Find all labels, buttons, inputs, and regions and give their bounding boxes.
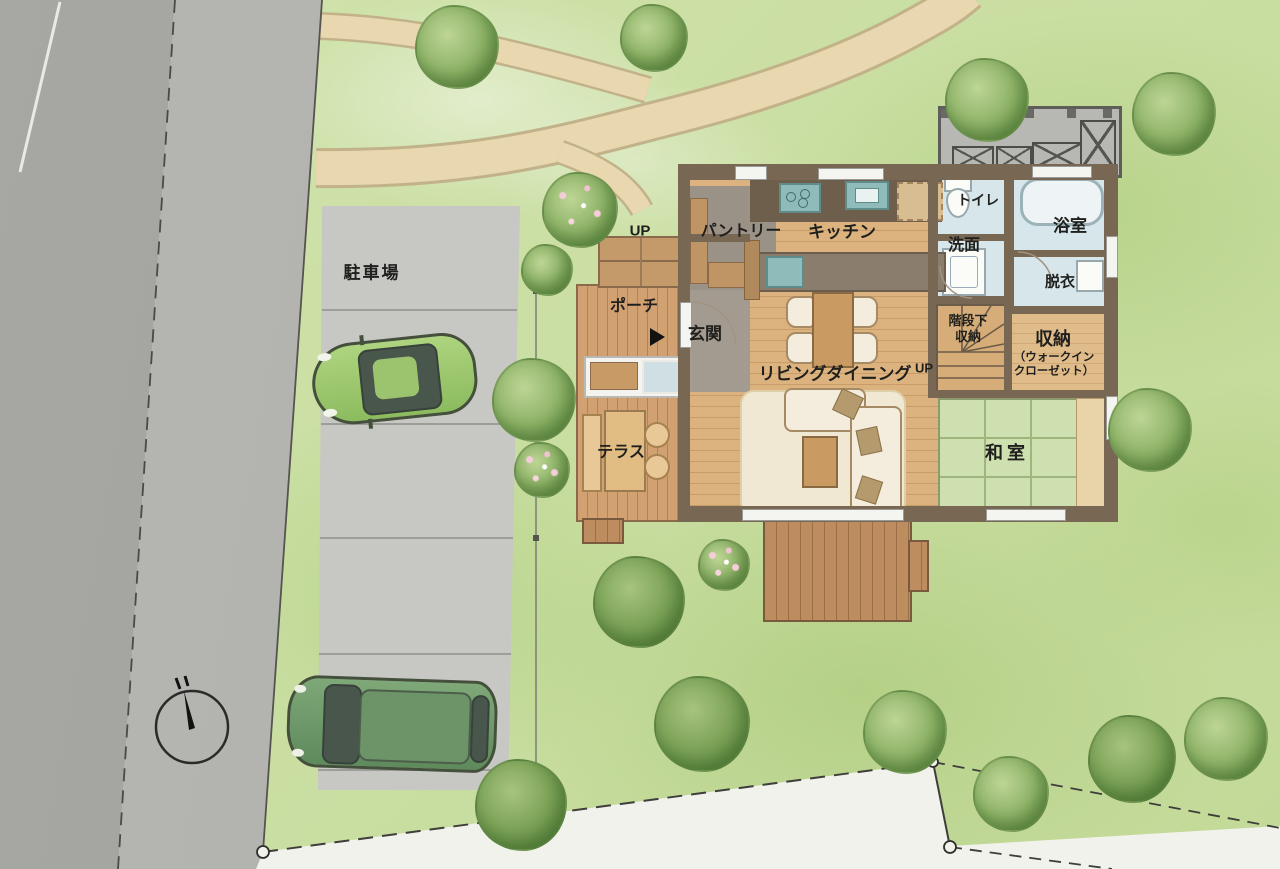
washing-machine	[1076, 260, 1104, 292]
flowering-tree	[698, 539, 750, 591]
tree	[973, 756, 1049, 832]
tree	[415, 5, 499, 89]
living-dining-label: リビングダイニング	[759, 360, 912, 385]
vanity-sink	[950, 256, 978, 288]
equipment-pad	[1080, 120, 1116, 170]
wall-wash-bath	[1004, 170, 1014, 310]
terrace-step	[582, 518, 624, 544]
sink-basin	[855, 188, 879, 203]
tree	[654, 676, 750, 772]
island-sink	[766, 256, 804, 288]
pantry-label: パントリー	[701, 217, 782, 241]
under-stair-storage-line1: 階段下	[948, 313, 987, 329]
window	[735, 166, 767, 180]
vanity	[942, 248, 986, 296]
dressing-label: 脱衣	[1045, 271, 1075, 292]
wall-tatami-north	[928, 390, 1118, 398]
tree	[863, 690, 947, 774]
tree	[1184, 697, 1268, 781]
neighbor-boundary-1	[950, 847, 1112, 869]
tree	[1088, 715, 1176, 803]
parking-label: 駐車場	[344, 259, 401, 284]
under-stair-storage-label: 階段下 収納	[948, 313, 987, 346]
storage-sub-line2: クローゼット）	[1014, 365, 1095, 379]
storage-label: 収納	[1035, 325, 1071, 351]
tree	[521, 244, 573, 296]
porch-label: ポーチ	[610, 292, 658, 316]
up-stairs-label: UP	[915, 361, 933, 376]
stove	[779, 183, 821, 213]
bathroom-label: 浴室	[1053, 212, 1087, 237]
flowering-tree	[542, 172, 618, 248]
coffee-table	[802, 436, 838, 488]
terrace-label: テラス	[597, 438, 645, 462]
under-stair-storage-line2: 収納	[948, 329, 987, 345]
window	[1032, 166, 1092, 178]
wall-stairs-wic	[1004, 300, 1012, 396]
headlight	[294, 685, 306, 693]
tree	[1132, 72, 1216, 156]
flowering-tree	[514, 442, 570, 498]
entrance-label: 玄関	[688, 320, 722, 345]
window-bath-east	[1106, 236, 1118, 278]
deck-step	[908, 540, 929, 592]
toilet-label: トイレ	[957, 190, 999, 210]
wall-bath-dressing	[1012, 250, 1106, 257]
burner	[786, 192, 796, 202]
porch-steps	[598, 236, 686, 288]
kitchen-label: キッチン	[808, 218, 876, 243]
entry-arrow-icon	[650, 328, 665, 346]
dining-table	[812, 292, 854, 368]
kitchen-sink	[845, 181, 889, 210]
terrace-stool	[644, 422, 670, 448]
wall-wet-stairs	[928, 296, 1014, 304]
japanese-room-label: 和室	[985, 439, 1029, 465]
tree	[593, 556, 685, 648]
island-cabinet	[744, 240, 760, 300]
car-roof	[372, 356, 420, 400]
yard-post	[1103, 109, 1112, 118]
washroom-label: 洗面	[948, 231, 980, 255]
wall-stairs-west	[928, 296, 936, 396]
burner	[798, 198, 808, 208]
tree	[492, 358, 576, 442]
car-roof	[358, 689, 472, 765]
tree	[945, 58, 1029, 142]
dining-chair	[850, 296, 878, 328]
car-rear-glass	[470, 695, 490, 764]
car-windshield	[322, 684, 363, 765]
storage-sub-line1: （ウォークイン	[1014, 351, 1095, 365]
wall-dressing-wic	[1012, 306, 1106, 314]
car-compact	[308, 330, 481, 429]
up-porch-label: UP	[630, 223, 651, 240]
window-living-south	[742, 509, 904, 521]
wood-deck	[763, 518, 912, 622]
storage-sub-label: （ウォークイン クローゼット）	[1014, 351, 1095, 380]
step-edge	[640, 238, 642, 286]
wall-east	[1104, 164, 1118, 522]
car-minivan	[285, 674, 498, 773]
tree	[620, 4, 688, 72]
window	[818, 168, 884, 180]
step-edge	[600, 260, 684, 262]
dining-chair	[786, 296, 814, 328]
wall-kitchen-wet	[928, 170, 938, 300]
terrace-stool	[644, 454, 670, 480]
site-plan: 駐車場 UP ポーチ 玄関 パントリー キッチン トイレ 洗面 浴室 脱衣 リビ…	[0, 0, 1280, 869]
window-tatami-south	[986, 509, 1066, 521]
yard-post	[1067, 109, 1076, 118]
tree	[1108, 388, 1192, 472]
bench-seat	[590, 362, 638, 390]
